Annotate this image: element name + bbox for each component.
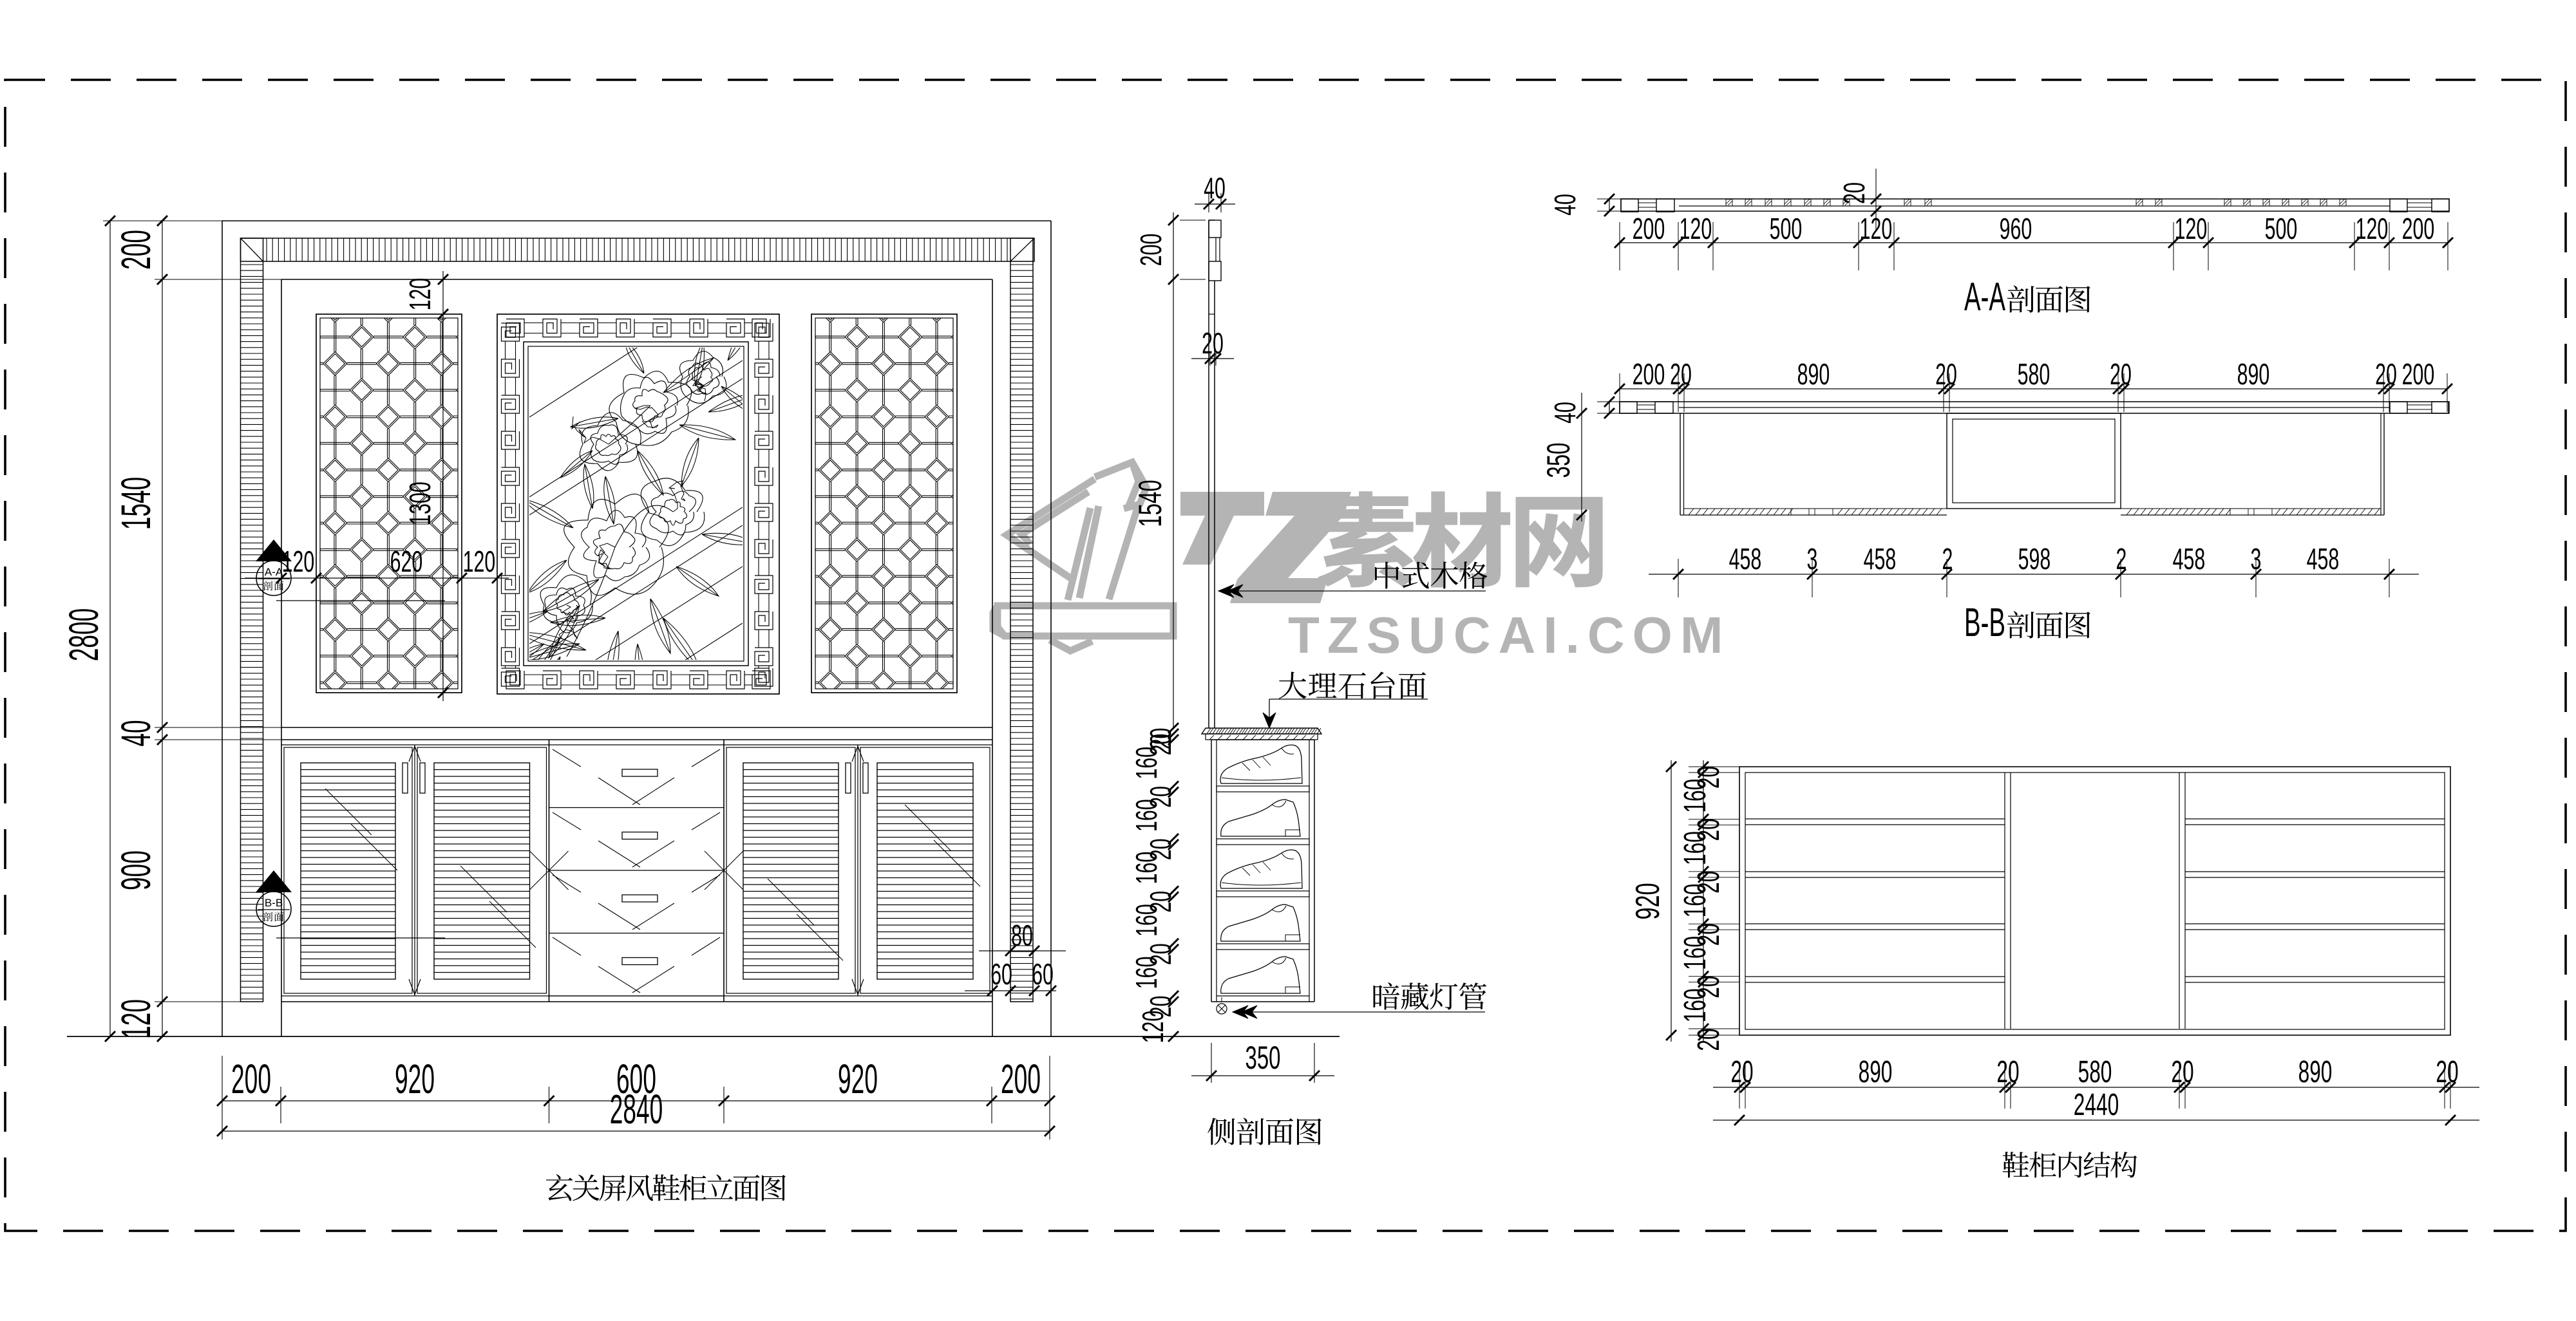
svg-text:40: 40 [1204, 173, 1226, 205]
svg-text:2440: 2440 [2074, 1087, 2119, 1121]
svg-text:458: 458 [2307, 543, 2340, 576]
svg-text:20: 20 [2171, 1054, 2193, 1089]
svg-text:TZSUCAI.COM: TZSUCAI.COM [1288, 606, 1731, 664]
svg-text:40: 40 [1549, 194, 1582, 216]
svg-text:20: 20 [2375, 359, 2397, 391]
svg-text:350: 350 [1245, 1040, 1280, 1075]
svg-text:500: 500 [2265, 213, 2298, 246]
svg-text:20: 20 [2436, 1054, 2458, 1089]
svg-text:160: 160 [1131, 904, 1164, 937]
svg-text:200: 200 [1633, 359, 1665, 391]
svg-text:120: 120 [1860, 213, 1893, 246]
svg-text:920: 920 [395, 1057, 435, 1103]
svg-text:1540: 1540 [114, 477, 160, 530]
svg-text:160: 160 [1131, 852, 1164, 885]
svg-text:3: 3 [2251, 543, 2262, 576]
svg-text:900: 900 [114, 850, 160, 890]
svg-text:160: 160 [1677, 988, 1712, 1022]
svg-text:120: 120 [1137, 1011, 1170, 1044]
svg-text:920: 920 [1629, 883, 1667, 919]
svg-text:60: 60 [1032, 959, 1054, 991]
svg-text:2800: 2800 [62, 608, 108, 662]
svg-text:2840: 2840 [610, 1087, 663, 1133]
svg-text:120: 120 [1680, 213, 1712, 246]
svg-text:B-B: B-B [265, 897, 283, 909]
svg-text:500: 500 [1770, 213, 1803, 246]
svg-text:40: 40 [114, 720, 160, 746]
svg-text:620: 620 [390, 546, 423, 579]
svg-text:920: 920 [838, 1057, 878, 1103]
svg-text:580: 580 [2078, 1054, 2112, 1089]
svg-text:160: 160 [1131, 957, 1164, 989]
svg-text:120: 120 [282, 546, 315, 579]
svg-text:458: 458 [1729, 543, 1762, 576]
svg-text:20: 20 [1690, 1028, 1725, 1051]
svg-text:80: 80 [1011, 920, 1033, 953]
svg-text:20: 20 [1996, 1054, 2019, 1089]
svg-text:200: 200 [2402, 213, 2435, 246]
svg-text:20: 20 [1839, 182, 1871, 204]
svg-text:200: 200 [114, 230, 160, 270]
svg-text:120: 120 [114, 999, 160, 1039]
svg-text:200: 200 [231, 1057, 271, 1103]
svg-text:A-A: A-A [1964, 274, 2006, 319]
svg-text:160: 160 [1131, 747, 1164, 780]
svg-text:458: 458 [1864, 543, 1897, 576]
svg-text:20: 20 [1935, 359, 1957, 391]
svg-text:20: 20 [1730, 1054, 1753, 1089]
svg-text:2: 2 [1942, 543, 1953, 576]
svg-text:890: 890 [2298, 1054, 2333, 1089]
svg-text:458: 458 [2173, 543, 2206, 576]
svg-text:120: 120 [2175, 213, 2208, 246]
svg-text:200: 200 [2402, 359, 2435, 391]
svg-text:A-A: A-A [265, 566, 283, 578]
svg-text:1540: 1540 [1132, 480, 1168, 527]
svg-text:60: 60 [990, 959, 1012, 991]
svg-text:2: 2 [2116, 543, 2127, 576]
svg-text:120: 120 [404, 278, 437, 311]
svg-text:120: 120 [2356, 213, 2389, 246]
svg-text:20: 20 [1202, 328, 1224, 361]
svg-text:890: 890 [2237, 359, 2270, 391]
svg-text:160: 160 [1131, 799, 1164, 832]
svg-text:B-B: B-B [1964, 600, 2005, 645]
svg-text:890: 890 [1797, 359, 1830, 391]
svg-text:160: 160 [1677, 831, 1712, 865]
svg-text:960: 960 [2000, 213, 2032, 246]
svg-text:120: 120 [463, 546, 496, 579]
svg-text:20: 20 [2110, 359, 2132, 391]
svg-text:200: 200 [1633, 213, 1665, 246]
svg-text:890: 890 [1859, 1054, 1893, 1089]
svg-text:160: 160 [1677, 779, 1712, 813]
svg-text:160: 160 [1677, 884, 1712, 918]
svg-text:580: 580 [2018, 359, 2050, 391]
svg-text:598: 598 [2018, 543, 2051, 576]
svg-text:20: 20 [1670, 359, 1692, 391]
svg-text:200: 200 [1135, 234, 1168, 267]
svg-text:40: 40 [1549, 402, 1582, 424]
svg-text:1300: 1300 [404, 482, 437, 525]
svg-text:200: 200 [1001, 1057, 1041, 1103]
svg-text:350: 350 [1540, 442, 1576, 478]
svg-text:3: 3 [1807, 543, 1818, 576]
svg-text:160: 160 [1677, 936, 1712, 970]
